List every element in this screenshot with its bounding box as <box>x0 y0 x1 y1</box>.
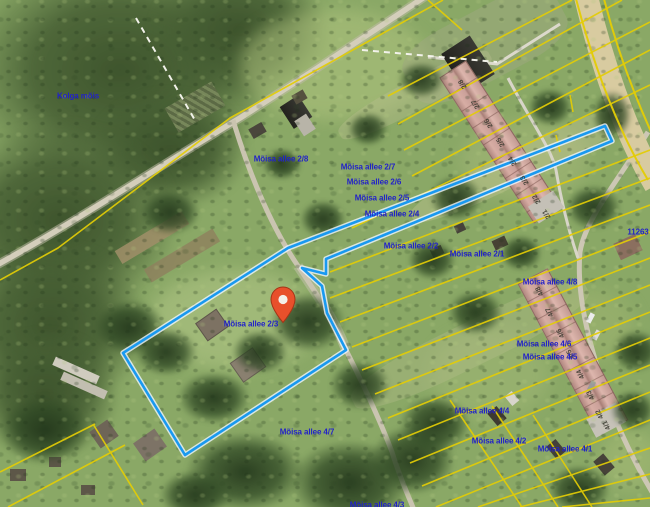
shed <box>430 245 445 258</box>
map-label: Mõisa allee 2/7 <box>341 163 396 172</box>
building-gray-section <box>586 402 626 437</box>
cadastral-overlay <box>0 0 650 507</box>
dry-grass-strip <box>405 97 636 233</box>
shed <box>546 439 565 459</box>
house <box>230 347 267 383</box>
roof-unit-label: 4/2 <box>595 408 606 420</box>
house <box>89 419 118 448</box>
roof-unit-label: 4/1 <box>602 419 613 431</box>
tree-cluster <box>448 290 503 335</box>
map-label: Mõisa allee 2/2 <box>384 242 439 251</box>
tree-cluster <box>548 465 610 507</box>
address-labels: Kolga mõisMõisa allee 2/8Mõisa allee 2/7… <box>0 0 650 507</box>
forest-patch <box>0 120 180 320</box>
apartment-building-north <box>439 60 561 223</box>
cadastral-lines <box>0 0 650 507</box>
tree-cluster <box>592 90 632 140</box>
tree-cluster <box>400 395 470 453</box>
roof-unit-label: 2/1 <box>541 208 552 220</box>
roof-unit-label: 2/2 <box>531 193 542 205</box>
roof-unit-label: 4/6 <box>556 327 567 339</box>
roof-unit-label: 4/7 <box>545 306 556 318</box>
marker-pin-icon <box>271 287 295 323</box>
roof-unit-label: 2/7 <box>470 98 481 110</box>
greenhouse <box>505 391 520 406</box>
tilled-field-strip <box>115 211 190 264</box>
map-label: Mõisa allee 4/6 <box>517 340 572 349</box>
map-label: Mõisa allee 2/5 <box>355 194 410 203</box>
tree-cluster <box>330 360 390 410</box>
road-layer <box>0 0 650 507</box>
field-patch <box>430 330 550 420</box>
roof-unit-label: 4/4 <box>576 368 587 380</box>
shed <box>593 453 615 475</box>
map-label: Mõisa allee 4/2 <box>472 437 527 446</box>
map-label: Mõisa allee 2/1 <box>450 250 505 259</box>
house <box>613 234 642 260</box>
shed <box>81 485 95 495</box>
roof-unit-label: 4/5 <box>566 348 577 360</box>
tree-cluster <box>566 185 621 230</box>
greenhouse <box>52 357 100 385</box>
map-canvas[interactable]: 2/82/72/62/52/42/32/22/1 4/84/74/64/54/4… <box>0 0 650 507</box>
garden-rows <box>165 81 226 132</box>
map-label: Mõisa allee 2/6 <box>347 178 402 187</box>
roof-unit-label: 2/3 <box>519 174 530 186</box>
field-patch <box>600 430 650 490</box>
map-label: Kolga mõis <box>57 92 99 101</box>
map-label: Mõisa allee 4/8 <box>523 278 578 287</box>
tree-cluster <box>348 112 388 146</box>
tree-cluster <box>0 395 90 465</box>
tree-cluster <box>270 292 346 352</box>
shed <box>492 236 509 251</box>
field-patch <box>240 10 430 120</box>
map-label: Mõisa allee 4/5 <box>523 353 578 362</box>
shed <box>454 222 466 233</box>
tree-cluster <box>262 148 302 180</box>
shed <box>248 122 266 139</box>
house <box>195 309 229 342</box>
dry-grass-strip <box>333 42 497 148</box>
tree-cluster <box>610 390 650 430</box>
roof-unit-label: 2/8 <box>457 78 468 90</box>
tree-cluster <box>398 62 444 98</box>
building-dark-roof-section <box>441 35 495 92</box>
map-label: Mõisa allee 2/4 <box>365 210 420 219</box>
map-label: 11263 <box>627 228 648 237</box>
car <box>586 312 595 323</box>
footpath <box>508 78 578 258</box>
shed <box>49 457 61 467</box>
road-east <box>579 132 650 492</box>
tree-cluster <box>232 330 288 374</box>
buildings-layer <box>0 0 650 507</box>
tree-cluster <box>140 190 200 235</box>
road-11263 <box>584 0 650 185</box>
tree-layer <box>0 0 650 507</box>
shed <box>10 469 26 481</box>
roof-unit-label: 2/5 <box>495 136 506 148</box>
roof-labels-north: 2/82/72/62/52/42/32/22/1 <box>0 0 650 507</box>
tree-cluster <box>160 470 230 507</box>
map-label: Mõisa allee 4/1 <box>538 445 593 454</box>
tree-cluster <box>408 240 456 280</box>
house <box>280 95 313 129</box>
car <box>592 329 601 340</box>
apartment-building-east <box>518 268 629 436</box>
photo-texture <box>0 0 650 507</box>
house <box>294 114 316 137</box>
roof-unit-label: 2/6 <box>483 117 494 129</box>
car <box>587 380 596 391</box>
parcel-highlight-outline <box>123 126 612 455</box>
tree-cluster <box>500 235 542 271</box>
greenhouse <box>60 372 108 400</box>
tree-cluster <box>300 200 346 238</box>
forest-patch <box>0 0 280 190</box>
footpath-dashed-line <box>136 18 497 122</box>
map-label: Mõisa allee 2/3 <box>224 320 279 329</box>
shed <box>291 89 307 104</box>
map-label: Mõisa allee 4/4 <box>455 407 510 416</box>
map-label: Mõisa allee 2/8 <box>254 155 309 164</box>
forest-patch <box>150 0 330 100</box>
road-main-west <box>0 0 432 266</box>
tree-cluster <box>185 432 305 507</box>
tree-cluster <box>95 300 165 355</box>
tree-cluster <box>370 425 455 495</box>
field-patch <box>460 120 590 200</box>
roof-unit-label: 4/8 <box>535 285 546 297</box>
tree-cluster <box>612 330 650 372</box>
road-edge-lines <box>575 0 650 180</box>
forest-patch <box>0 240 150 410</box>
field-patch <box>545 290 635 360</box>
tilled-field-strip <box>144 228 220 282</box>
field-patch <box>150 270 320 370</box>
tree-cluster <box>135 328 197 376</box>
tree-cluster <box>178 372 250 424</box>
roof-unit-label: 2/4 <box>507 155 518 167</box>
building-gray-section <box>528 190 564 223</box>
forest-patch <box>0 330 120 460</box>
tree-cluster <box>528 88 572 126</box>
marker-pin-hole <box>278 295 287 304</box>
footpath <box>428 24 560 64</box>
roof-labels-east: 4/84/74/64/54/44/34/24/1 <box>0 0 650 507</box>
location-marker[interactable] <box>270 286 296 324</box>
house <box>133 429 167 462</box>
tree-cluster <box>290 440 410 507</box>
map-label: Mõisa allee 4/3 <box>350 501 405 507</box>
field-patch <box>394 0 577 116</box>
map-label: Mõisa allee 4/7 <box>280 428 335 437</box>
tree-cluster <box>430 175 482 221</box>
forest-patch <box>90 90 250 210</box>
road-south <box>233 120 414 507</box>
roof-unit-label: 4/3 <box>586 389 597 401</box>
shed <box>487 406 506 426</box>
aerial-base <box>0 0 650 507</box>
dry-grass-strip <box>344 268 597 422</box>
